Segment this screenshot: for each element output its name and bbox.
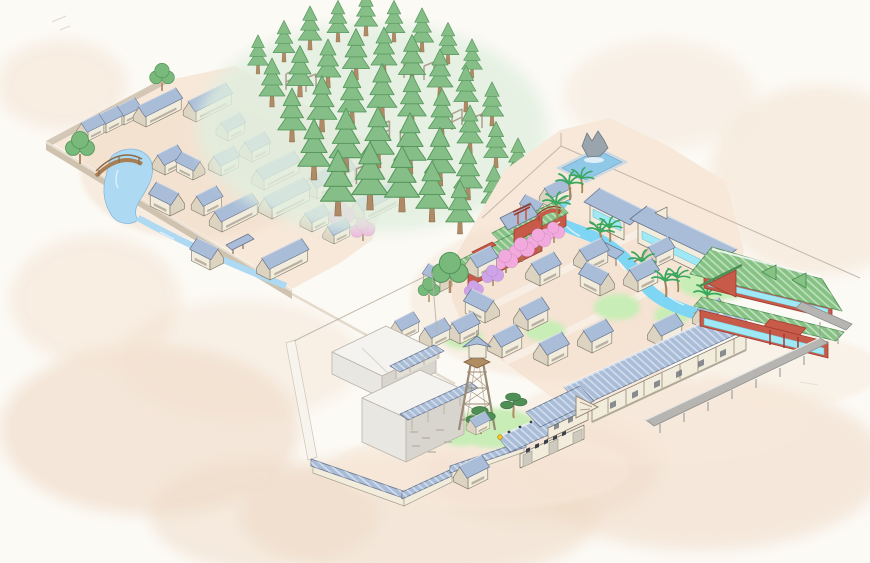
paper-scratches (52, 16, 70, 30)
park-map-illustration (0, 0, 870, 563)
map-canvas (0, 0, 870, 563)
